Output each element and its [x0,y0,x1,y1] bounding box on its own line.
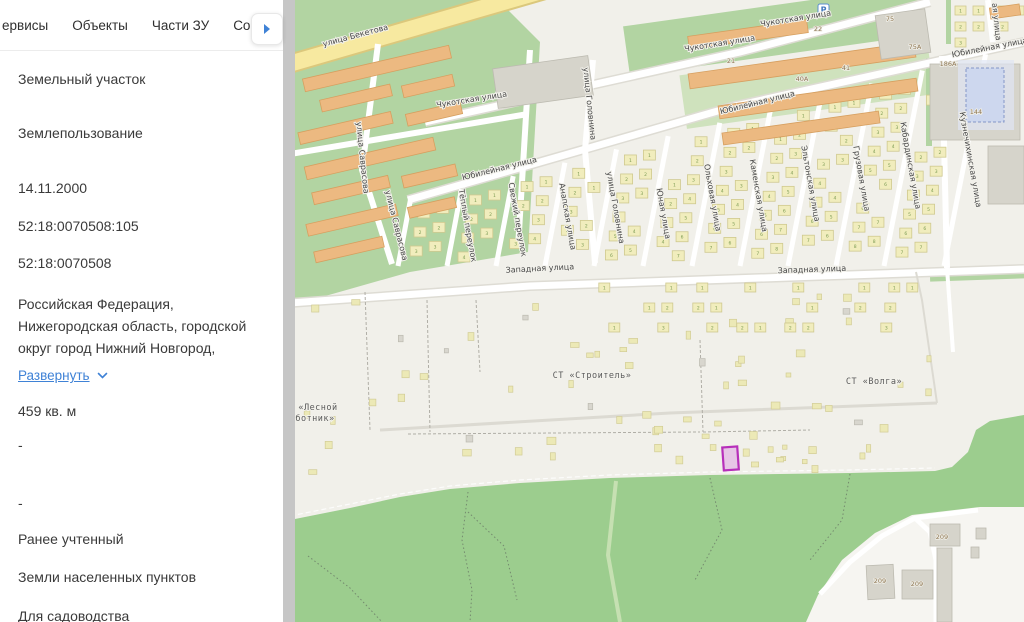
svg-text:7: 7 [920,245,923,251]
svg-text:4: 4 [790,170,793,176]
selected-parcel[interactable] [722,446,739,470]
cadastral-map-app: ервисы Объекты Части ЗУ Соста Земельный … [0,0,1024,622]
svg-text:1: 1 [811,306,814,312]
svg-text:2: 2 [889,306,892,312]
svg-text:1: 1 [603,286,606,292]
svg-text:7: 7 [779,227,782,233]
svg-text:7: 7 [901,250,904,256]
tabs-scroll-right-button[interactable] [251,13,283,45]
svg-text:5: 5 [732,221,735,227]
svg-text:3: 3 [415,249,418,255]
svg-text:3: 3 [514,242,517,248]
svg-text:7: 7 [858,225,861,231]
svg-text:1: 1 [613,326,616,332]
svg-text:1: 1 [853,100,856,106]
svg-text:2: 2 [541,199,544,205]
svg-text:1: 1 [759,326,762,332]
land-category: Земли населенных пунктов [18,569,265,586]
svg-text:1: 1 [715,306,718,312]
svg-text:209: 209 [936,533,948,541]
svg-text:СТ «Строитель»: СТ «Строитель» [553,371,632,381]
svg-text:1: 1 [749,286,752,292]
svg-text:2: 2 [696,159,699,165]
svg-text:1: 1 [493,193,496,199]
svg-text:6: 6 [783,208,786,214]
svg-text:3: 3 [640,191,643,197]
svg-text:3: 3 [434,244,437,250]
svg-text:3: 3 [896,125,899,131]
svg-text:2: 2 [959,25,962,31]
svg-text:6: 6 [884,182,887,188]
svg-text:«Лесной: «Лесной [298,403,337,413]
svg-text:6: 6 [923,226,926,232]
svg-text:1: 1 [893,286,896,292]
svg-text:2: 2 [775,156,778,162]
svg-text:2: 2 [939,150,942,156]
svg-text:1: 1 [577,171,580,177]
svg-text:2: 2 [741,326,744,332]
svg-text:1: 1 [545,180,548,186]
parcel-attributes: Земельный участок Землепользование 14.11… [0,71,283,622]
svg-text:75: 75 [886,15,894,23]
svg-text:2: 2 [789,326,792,332]
svg-text:7: 7 [677,254,680,260]
svg-text:2: 2 [625,177,628,183]
panel-map-divider [283,0,295,622]
chevron-right-icon [262,23,272,35]
svg-text:6: 6 [826,233,829,239]
svg-text:1: 1 [863,286,866,292]
svg-text:144: 144 [970,108,982,116]
svg-text:5: 5 [927,207,930,213]
status-value: Ранее учтенный [18,531,265,548]
svg-text:4: 4 [688,197,691,203]
svg-text:3: 3 [581,242,584,248]
svg-text:2: 2 [697,306,700,312]
svg-text:75А: 75А [909,43,922,51]
svg-text:3: 3 [662,326,665,332]
svg-text:7: 7 [877,220,880,226]
svg-text:2: 2 [920,155,923,161]
svg-text:22: 22 [814,25,822,33]
svg-text:4: 4 [463,255,466,261]
svg-text:21: 21 [727,57,735,65]
svg-text:4: 4 [768,194,771,200]
svg-text:1: 1 [670,286,673,292]
svg-text:1: 1 [592,185,595,191]
svg-text:8: 8 [873,239,876,245]
svg-text:3: 3 [794,151,797,157]
svg-text:209: 209 [911,580,923,588]
svg-text:3: 3 [692,178,695,184]
empty-value-1: - [18,437,265,454]
svg-text:1: 1 [701,286,704,292]
panel-tabs: ервисы Объекты Части ЗУ Соста [0,0,283,51]
svg-text:2: 2 [437,225,440,231]
svg-text:40А: 40А [796,75,809,83]
svg-text:2: 2 [807,326,810,332]
svg-text:8: 8 [775,246,778,252]
svg-text:2: 2 [729,150,732,156]
svg-text:5: 5 [830,214,833,220]
svg-text:1: 1 [474,198,477,204]
svg-text:4: 4 [736,202,739,208]
svg-text:3: 3 [841,157,844,163]
empty-value-2: - [18,495,265,512]
svg-text:3: 3 [935,169,938,175]
svg-text:1: 1 [673,183,676,189]
svg-text:2: 2 [669,202,672,208]
svg-text:1: 1 [834,105,837,111]
svg-text:6: 6 [610,253,613,259]
svg-text:1: 1 [629,158,632,164]
svg-text:41: 41 [842,64,850,72]
svg-text:7: 7 [807,238,810,244]
svg-text:ботник»: ботник» [295,413,334,424]
svg-text:4: 4 [892,144,895,150]
svg-text:2: 2 [585,223,588,229]
svg-text:2: 2 [419,230,422,236]
tab-objects[interactable]: Объекты [72,18,128,33]
parcel-type: Земельный участок [18,71,265,88]
svg-text:2: 2 [522,204,525,210]
tab-services[interactable]: ервисы [2,18,48,33]
svg-text:3: 3 [485,231,488,237]
cadastral-number: 52:18:0070508:105 [18,218,265,235]
chevron-down-icon [97,372,108,380]
svg-text:2: 2 [489,212,492,218]
svg-text:6: 6 [728,240,731,246]
svg-text:1: 1 [648,306,651,312]
svg-text:7: 7 [710,245,713,251]
svg-text:2: 2 [845,138,848,144]
svg-text:1: 1 [977,9,980,15]
svg-text:5: 5 [787,189,790,195]
svg-text:3: 3 [537,218,540,224]
svg-text:4: 4 [721,188,724,194]
svg-text:6: 6 [760,232,763,238]
svg-text:2: 2 [899,106,902,112]
svg-text:1: 1 [526,185,529,191]
svg-text:6: 6 [904,231,907,237]
svg-text:2: 2 [644,172,647,178]
svg-text:3: 3 [725,169,728,175]
svg-text:2: 2 [880,111,883,117]
svg-text:209: 209 [874,577,886,585]
svg-text:2: 2 [977,25,980,31]
svg-text:4: 4 [633,229,636,235]
svg-text:5: 5 [684,216,687,222]
svg-text:3: 3 [740,183,743,189]
svg-text:4: 4 [662,240,665,246]
svg-text:2: 2 [711,326,714,332]
svg-text:3: 3 [877,130,880,136]
registration-date: 14.11.2000 [18,180,265,197]
land-use: Землепользование [18,125,265,142]
tab-parts[interactable]: Части ЗУ [152,18,209,33]
svg-text:1: 1 [648,153,651,159]
svg-text:1: 1 [802,113,805,119]
address: Российская Федерация, Нижегородская обла… [18,293,268,359]
svg-text:3: 3 [822,162,825,168]
svg-text:5: 5 [869,168,872,174]
svg-text:3: 3 [621,196,624,202]
svg-text:1: 1 [911,286,914,292]
svg-text:5: 5 [908,212,911,218]
svg-text:2: 2 [859,306,862,312]
svg-text:2: 2 [747,145,750,151]
svg-text:1: 1 [700,140,703,146]
svg-text:1: 1 [959,9,962,15]
cadastral-quarter: 52:18:0070508 [18,255,265,272]
svg-text:8: 8 [854,244,857,250]
svg-text:1: 1 [797,286,800,292]
svg-text:4: 4 [818,181,821,187]
svg-text:2: 2 [666,306,669,312]
parcel-info-panel: ервисы Объекты Части ЗУ Соста Земельный … [0,0,283,622]
svg-text:6: 6 [681,235,684,241]
svg-text:3: 3 [772,175,775,181]
svg-text:7: 7 [756,251,759,257]
map-viewport[interactable]: 1231231234123123123412341231234561234512… [295,0,1024,622]
svg-text:4: 4 [931,188,934,194]
map-canvas[interactable]: 1231231234123123123412341231234561234512… [295,0,1024,622]
svg-text:5: 5 [888,163,891,169]
permitted-use: Для садоводства [18,608,265,622]
svg-text:3: 3 [885,326,888,332]
svg-text:СТ «Волга»: СТ «Волга» [846,377,902,387]
svg-text:5: 5 [629,248,632,254]
svg-text:4: 4 [834,195,837,201]
svg-text:4: 4 [873,149,876,155]
svg-text:2: 2 [574,190,577,196]
svg-text:4: 4 [533,237,536,243]
svg-text:3: 3 [959,41,962,47]
svg-text:1: 1 [779,137,782,143]
svg-text:186А: 186А [940,60,957,68]
area-value: 459 кв. м [18,403,265,420]
expand-link[interactable]: Развернуть [18,368,90,383]
